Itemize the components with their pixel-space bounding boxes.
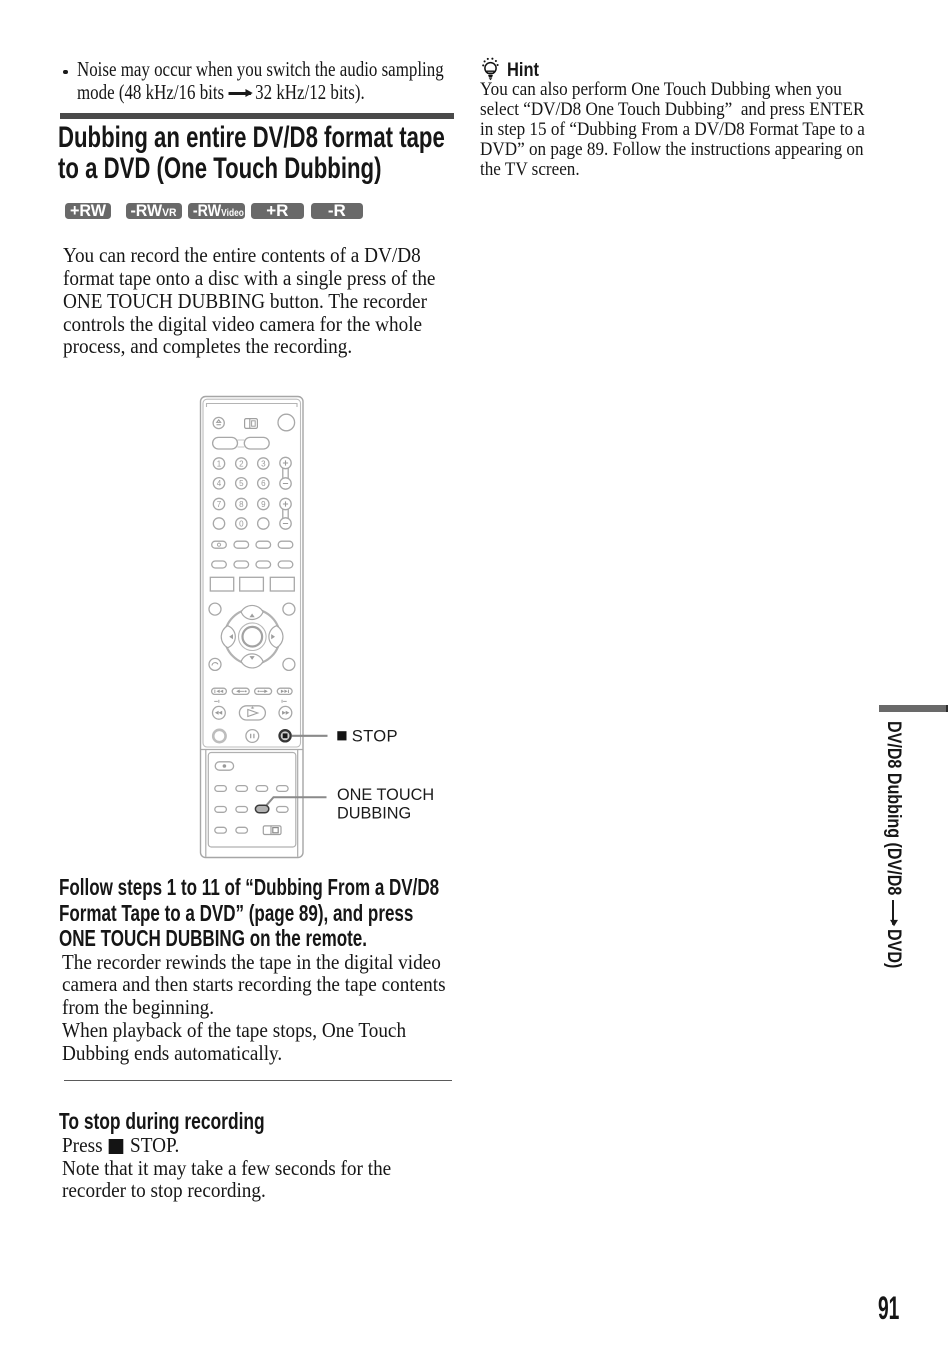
svg-text:6: 6: [261, 479, 266, 488]
svg-text:7: 7: [217, 500, 222, 509]
svg-text:DUBBING: DUBBING: [337, 804, 411, 822]
svg-text:3: 3: [261, 459, 266, 468]
svg-text:STOP: STOP: [352, 726, 398, 745]
svg-text:0: 0: [239, 519, 244, 528]
svg-text:ONE TOUCH: ONE TOUCH: [337, 786, 434, 804]
svg-text:2: 2: [239, 459, 244, 468]
svg-text:5: 5: [239, 479, 244, 488]
svg-text:1: 1: [217, 459, 222, 468]
svg-text:8: 8: [239, 500, 244, 509]
svg-text:4: 4: [217, 479, 222, 488]
svg-text:9: 9: [261, 500, 266, 509]
